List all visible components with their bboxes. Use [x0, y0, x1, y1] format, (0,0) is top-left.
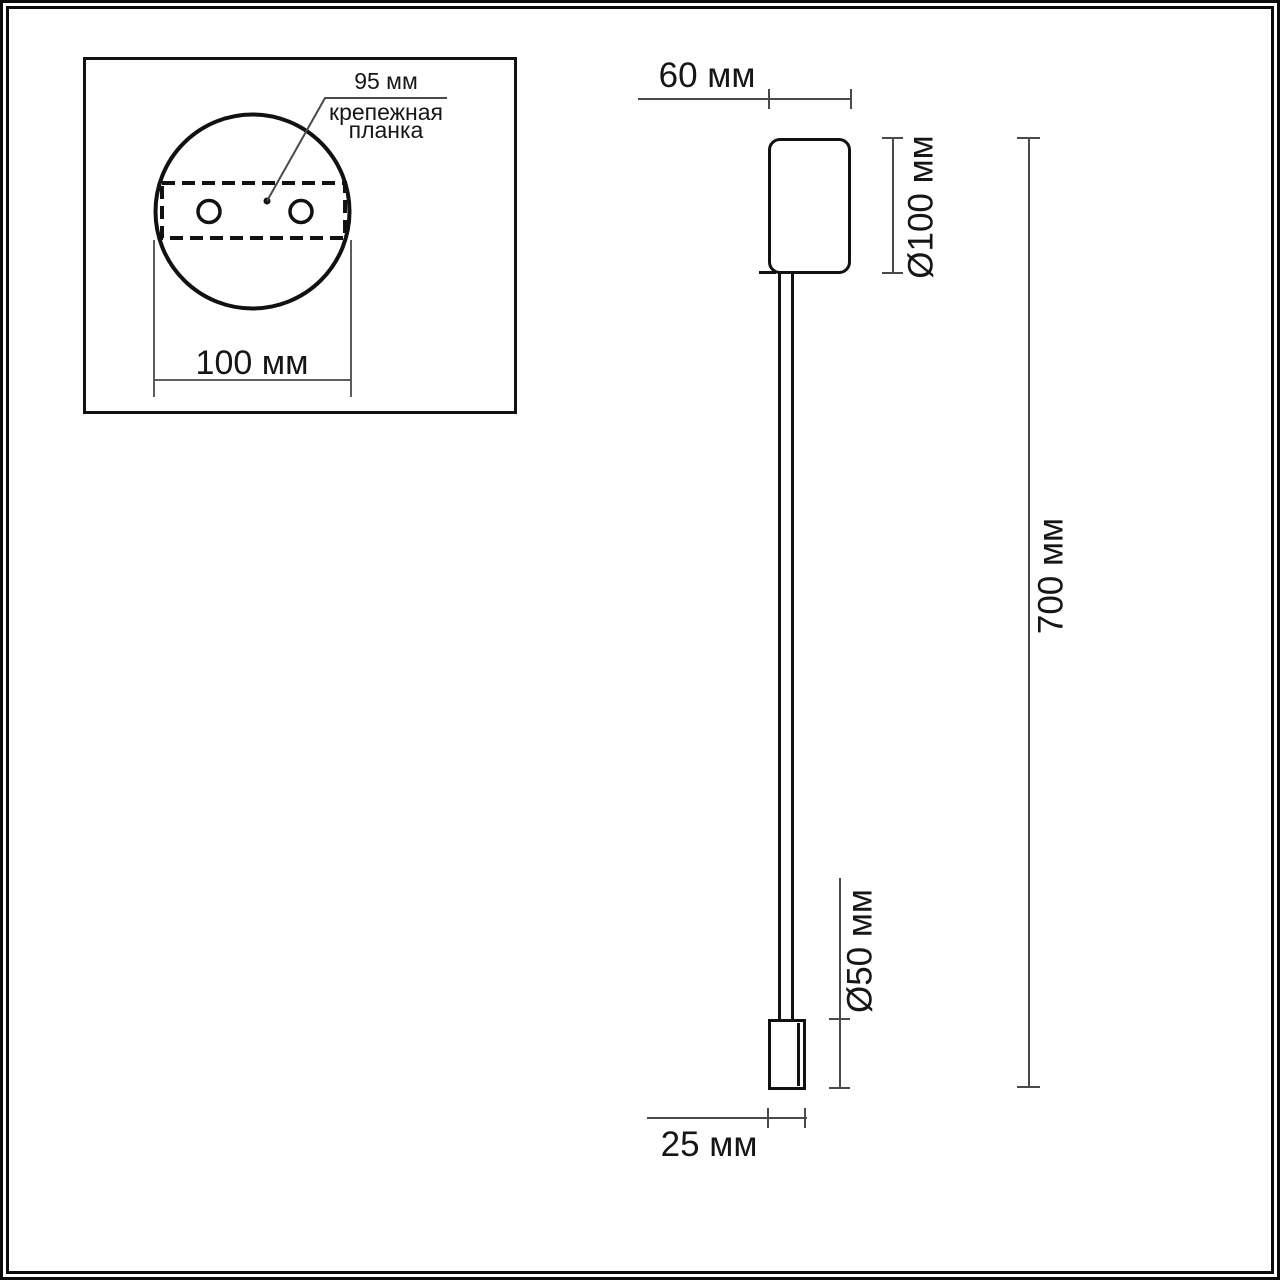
lamp-dimension-diagram: 95 мм крепежная планка 100 мм 60 мм Ø100… — [0, 0, 1280, 1280]
lamp-canopy-outline — [768, 138, 851, 274]
screw-hole-left — [198, 201, 220, 223]
lamp-canopy-lip — [759, 271, 776, 274]
dim-tick — [882, 137, 903, 139]
plate-name-label: крепежная планка — [323, 103, 449, 139]
dim-tick — [882, 272, 903, 274]
dim-tick — [850, 89, 852, 109]
dim-tick — [767, 1108, 769, 1128]
head-diameter-label: Ø50 мм — [843, 889, 878, 1013]
dimension-line-700 — [1028, 138, 1030, 1088]
screw-hole-right — [290, 201, 312, 223]
canopy-width-label: 60 мм — [627, 58, 787, 93]
dimension-line-25 — [647, 1117, 807, 1119]
total-height-label: 700 мм — [1034, 518, 1069, 634]
wall-plate-circle — [156, 115, 350, 309]
canopy-diameter-label: Ø100 мм — [904, 135, 939, 278]
plate-offset-label: 95 мм — [306, 72, 466, 90]
dim-tick — [1017, 1086, 1040, 1088]
dim-tick — [1017, 137, 1040, 139]
dimension-line-d100 — [892, 138, 894, 274]
dimension-line-60 — [638, 98, 852, 100]
dim-tick — [829, 1018, 850, 1020]
lamp-head-cylinder — [768, 1019, 806, 1090]
head-width-label: 25 мм — [629, 1127, 789, 1162]
lamp-head-inner-line — [797, 1023, 800, 1086]
dim-tick — [829, 1087, 850, 1089]
dim-tick — [804, 1108, 806, 1128]
mounting-bracket-dashed-rect — [162, 183, 345, 238]
base-width-label: 100 мм — [172, 346, 332, 381]
lamp-stem-rod — [778, 273, 794, 1021]
